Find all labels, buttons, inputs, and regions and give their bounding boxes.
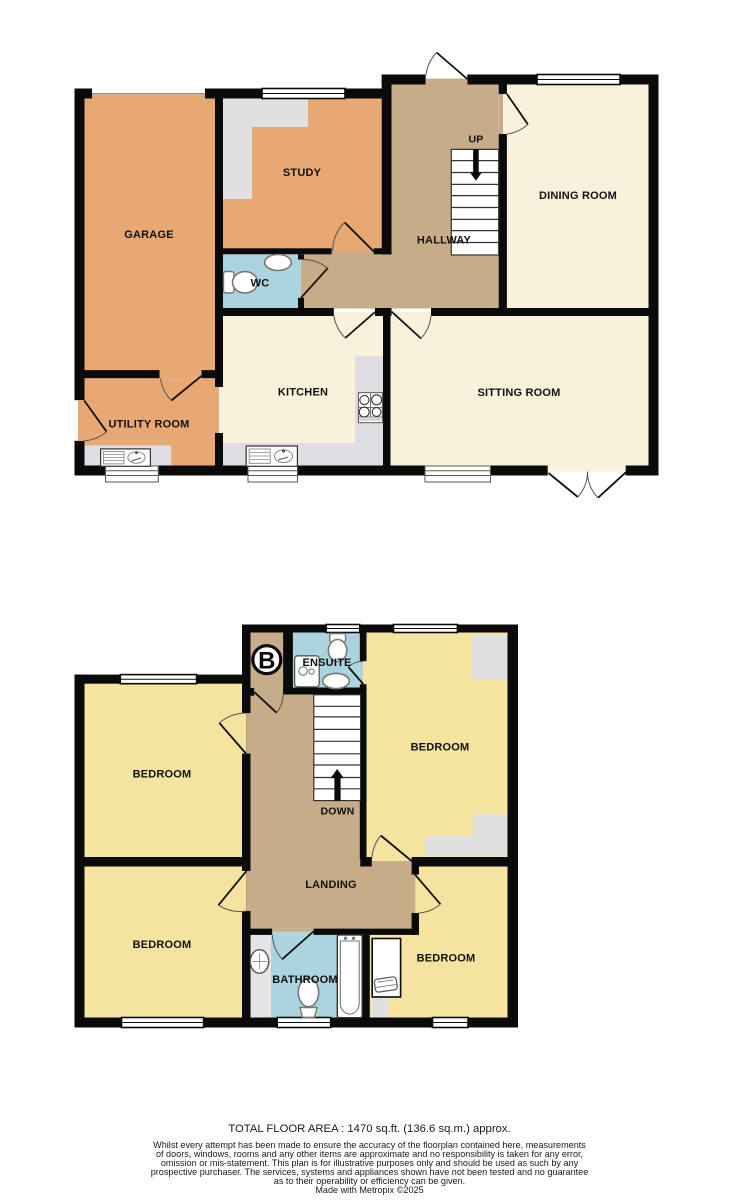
svg-text:B: B	[258, 647, 275, 674]
svg-text:GARAGE: GARAGE	[124, 229, 173, 241]
svg-text:BEDROOM: BEDROOM	[411, 742, 470, 754]
svg-text:BEDROOM: BEDROOM	[133, 939, 192, 951]
svg-text:BEDROOM: BEDROOM	[133, 769, 192, 781]
svg-text:UTILITY ROOM: UTILITY ROOM	[108, 419, 189, 431]
svg-text:BATHROOM: BATHROOM	[272, 974, 338, 986]
svg-text:BEDROOM: BEDROOM	[417, 953, 476, 965]
svg-text:DINING ROOM: DINING ROOM	[539, 190, 617, 202]
svg-text:SITTING ROOM: SITTING ROOM	[477, 387, 560, 399]
svg-text:UP: UP	[469, 133, 484, 145]
svg-text:WC: WC	[251, 278, 270, 290]
svg-text:KITCHEN: KITCHEN	[278, 387, 328, 399]
svg-text:STUDY: STUDY	[283, 167, 322, 179]
svg-text:LANDING: LANDING	[305, 879, 357, 891]
svg-text:DOWN: DOWN	[320, 806, 354, 818]
svg-text:HALLWAY: HALLWAY	[417, 235, 472, 247]
svg-text:ENSUITE: ENSUITE	[302, 657, 351, 669]
